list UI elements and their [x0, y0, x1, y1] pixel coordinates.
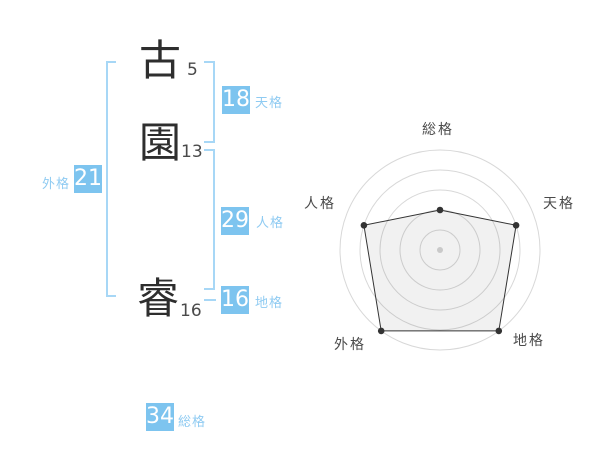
- soukaku-badge: 34: [146, 403, 174, 431]
- radar-center-dot: [437, 247, 443, 253]
- radar-chart-svg: 総格天格地格外格人格: [300, 110, 600, 370]
- radar-data-point-0: [437, 207, 444, 214]
- radar-axis-label-1: 天格: [543, 196, 575, 212]
- seimei-handan-result: 古 5 園 13 睿 16 18 天格 29 人格 16 地格 21 外格 34…: [0, 0, 600, 470]
- soukaku-label: 総格: [178, 416, 206, 429]
- name-char-3-strokes: 16: [180, 304, 202, 318]
- radar-axis-label-4: 人格: [304, 196, 336, 212]
- jinkaku-label: 人格: [256, 217, 284, 230]
- radar-data-point-4: [361, 222, 368, 229]
- radar-axis-label-3: 外格: [334, 337, 366, 353]
- name-char-2-strokes: 13: [181, 145, 203, 159]
- chikaku-label: 地格: [255, 297, 283, 310]
- radar-axis-label-0: 総格: [422, 122, 454, 138]
- name-char-1: 古: [138, 39, 182, 83]
- jinkaku-bracket: [204, 149, 215, 290]
- name-char-2: 園: [138, 121, 182, 165]
- tenkaku-label: 天格: [255, 97, 283, 110]
- gaikaku-badge: 21: [74, 165, 102, 193]
- chikaku-tick: [204, 299, 216, 301]
- chikaku-badge: 16: [221, 286, 249, 314]
- radar-data-point-2: [496, 328, 503, 335]
- name-char-3: 睿: [136, 277, 180, 321]
- radar-data-polygon: [364, 210, 516, 331]
- tenkaku-bracket: [204, 61, 215, 143]
- radar-data-point-3: [378, 328, 385, 335]
- name-char-1-strokes: 5: [187, 63, 198, 77]
- jinkaku-badge: 29: [221, 207, 249, 235]
- tenkaku-badge: 18: [222, 86, 250, 114]
- radar-chart: 総格天格地格外格人格: [300, 110, 600, 370]
- radar-data-point-1: [513, 222, 520, 229]
- gaikaku-bracket: [106, 61, 116, 297]
- radar-axis-label-2: 地格: [513, 333, 545, 349]
- gaikaku-label: 外格: [42, 178, 70, 191]
